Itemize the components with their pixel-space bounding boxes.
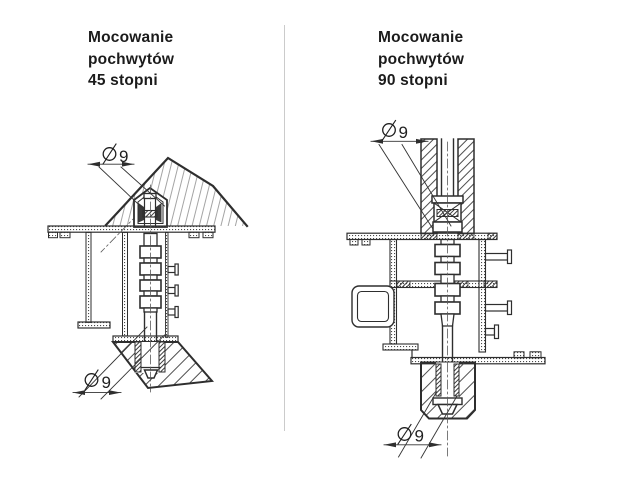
rail-slot-tooth xyxy=(530,352,541,358)
rail-joint-hatch xyxy=(458,233,474,239)
mid-rail-end-hatch xyxy=(484,281,497,288)
screw-bosses-left xyxy=(168,264,178,318)
dimension-value: 9 xyxy=(415,427,424,446)
dimension-value: 9 xyxy=(399,123,408,142)
diameter-symbol xyxy=(383,121,396,141)
box-section-right xyxy=(352,240,497,358)
arrowhead xyxy=(88,162,100,167)
screw-boss xyxy=(168,307,178,318)
channel-outer-wall xyxy=(86,232,91,322)
thread-liner-right xyxy=(454,364,459,396)
channel-foot xyxy=(78,322,110,328)
arrowhead xyxy=(384,442,396,447)
screw-boss xyxy=(486,301,512,315)
screw-boss xyxy=(168,264,178,275)
arrowhead xyxy=(73,390,85,395)
rail-slot-tooth xyxy=(350,240,358,246)
diameter-symbol xyxy=(398,425,411,445)
rail-joint-hatch xyxy=(421,233,437,239)
rail-slot-tooth xyxy=(49,232,58,238)
rail-end-hatch xyxy=(488,233,497,239)
top-rail-profile-right xyxy=(347,233,497,245)
channel-wall-right xyxy=(166,232,169,337)
leader-line xyxy=(99,167,144,210)
channel-inner-wall xyxy=(123,232,128,336)
anchor-cap xyxy=(144,194,156,199)
leader-line xyxy=(399,392,437,457)
screw-boss xyxy=(168,285,178,296)
arrowhead xyxy=(371,139,383,144)
mid-rail-joint-hatch xyxy=(397,281,410,288)
diameter-symbol xyxy=(103,144,116,164)
tube-45-hatch-area xyxy=(106,158,247,226)
base-block-90 xyxy=(421,363,475,419)
cross-section-drawing: 9 9 xyxy=(0,0,617,484)
screw-bosses-right xyxy=(486,250,512,339)
rail-slot-tooth xyxy=(60,232,70,238)
rail-plate xyxy=(48,226,215,232)
top-rail-profile-left xyxy=(48,226,215,238)
left-diagram: 9 9 xyxy=(48,144,247,399)
thread-liner-left xyxy=(135,342,141,372)
technical-sheet: Mocowanie pochwytów 45 stopni Mocowanie … xyxy=(0,0,617,484)
rail-slot-tooth xyxy=(514,352,524,358)
side-clip-inner xyxy=(358,292,389,322)
dimension-value: 9 xyxy=(119,147,128,166)
rail-slot-tooth xyxy=(189,232,199,238)
box-wall-right xyxy=(479,240,486,353)
screw-boss xyxy=(486,325,499,339)
thread-liner-left xyxy=(436,364,441,396)
rail-slot-tooth xyxy=(362,240,370,246)
arrowhead xyxy=(429,442,441,447)
screw-boss xyxy=(486,250,512,264)
box-foot-bar xyxy=(383,344,418,350)
dimension-value: 9 xyxy=(102,373,111,392)
right-diagram: 9 9 xyxy=(347,121,545,459)
base-block-45 xyxy=(113,336,212,388)
rail-slot-tooth xyxy=(203,232,213,238)
